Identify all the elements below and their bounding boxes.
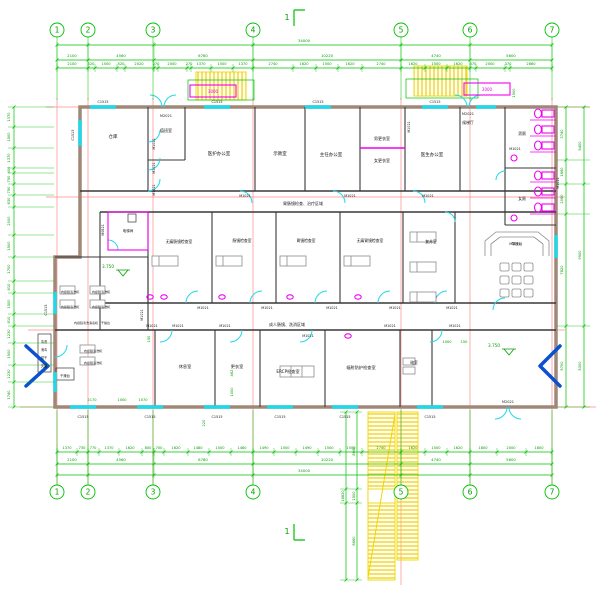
dim-top-detail: 270 — [153, 62, 161, 66]
dim-top-segment: 2100 — [67, 53, 77, 58]
room-female-wc: 女厕 — [518, 196, 526, 201]
dim-right-outer: 9900 — [578, 250, 582, 260]
room-director-office: 主任办公室 — [320, 151, 343, 158]
dim-left: 810 — [7, 283, 11, 291]
dim-left: 1370 — [7, 153, 11, 163]
dim-bottom-segment: 4560 — [116, 457, 126, 462]
room-storage: 仓库 — [109, 133, 118, 140]
label-process-step: 消毒 — [41, 347, 48, 352]
dim-top-segment: 6780 — [198, 53, 208, 58]
dim-right-outer: 5400 — [578, 141, 582, 151]
dim-left: 1370 — [7, 112, 11, 122]
window-code: C1515 — [275, 415, 286, 419]
dim-3000: 3000 — [208, 89, 219, 94]
grid-number-1: 1 — [55, 488, 60, 497]
door-code: M1021 — [556, 177, 560, 189]
dim-bottom-segment: 6780 — [198, 457, 208, 462]
window-code: C1515 — [430, 100, 441, 104]
grid-number-4: 4 — [251, 488, 256, 497]
dim-left: 1230 — [7, 329, 11, 339]
door-code: M1021 — [239, 194, 251, 198]
dim-bottom-segment: 5600 — [506, 457, 516, 462]
floor-plan-canvas: 2100520150052020202702000270137015001370… — [0, 0, 600, 600]
dim-top-segment: 4560 — [116, 53, 126, 58]
dim-right-outer: 5300 — [578, 361, 582, 371]
dim-top-detail: 2860 — [526, 62, 536, 66]
door-code: M1021 — [261, 306, 273, 310]
door-code: M1021 — [384, 324, 396, 328]
dim-top-detail: 1620 — [408, 62, 418, 66]
door-code: M1021 — [449, 324, 461, 328]
washer-units — [60, 286, 105, 365]
waiting-chairs — [500, 263, 533, 297]
grid-number-3: 3 — [151, 488, 156, 497]
window-code: C1515 — [212, 415, 223, 419]
dim-3000: 3000 — [482, 87, 493, 92]
elevation-right: 3.750 — [488, 343, 500, 348]
window-code: C1515 — [44, 305, 48, 316]
dim-bottom-detail: 1620 — [453, 446, 463, 450]
dim-ramp-total: 18820 — [341, 490, 345, 502]
dim-top-detail: 520 — [118, 62, 126, 66]
stair-top-right — [414, 66, 467, 96]
door-code: M2021 — [462, 112, 474, 116]
dim-top-detail: 1620 — [345, 62, 355, 66]
ceiling-fixture-symbols — [147, 295, 436, 338]
door-code: M1021 — [407, 121, 411, 133]
dim-top-detail: 2000 — [485, 62, 495, 66]
section-mark-symbols — [294, 10, 305, 540]
dim-ramp: 1500 — [352, 491, 356, 501]
dim-left: 810 — [7, 316, 11, 324]
dim-bottom-detail: 700 — [156, 446, 164, 450]
dim-right-inner: 3740 — [560, 129, 564, 139]
window-code: C1515 — [212, 100, 223, 104]
dim: 150 — [461, 340, 469, 344]
dim-bottom-detail: 2740 — [376, 446, 386, 450]
dim-bottom-detail: 770 — [90, 446, 98, 450]
room-male-locker: 男更衣室 — [374, 135, 390, 141]
dim-top-detail: 1500 — [322, 62, 332, 66]
room-radiation: 辐射防护检查室 — [346, 364, 375, 371]
dim-left: 1500 — [7, 349, 11, 359]
dim: 1500 — [512, 88, 516, 98]
dim-left: 1500 — [7, 299, 11, 309]
door-code: M2021 — [160, 114, 172, 118]
grid-number-6: 6 — [468, 26, 473, 35]
dim-top-detail: 1620 — [453, 62, 463, 66]
door-code: M1021 — [146, 324, 158, 328]
grid-number-2: 2 — [86, 488, 91, 497]
dim: 462 — [230, 370, 234, 377]
dim-top-detail: 270 — [186, 62, 194, 66]
dim-top-detail: 370 — [505, 62, 513, 66]
label-process-step: 清洗 — [41, 339, 48, 344]
grid-number-6: 6 — [468, 488, 473, 497]
label-endoscope-washer: 内窥镜清洗机 — [92, 289, 111, 294]
stair-hatches — [188, 66, 478, 580]
dim-ramp: 8660 — [352, 536, 356, 546]
room-painless-colonoscopy: 无痛肠镜检查室 — [166, 239, 193, 244]
room-ercp: ERCP检查室 — [276, 368, 299, 375]
dim-bottom-segment: 2100 — [67, 457, 77, 462]
window-code: C1515 — [313, 100, 324, 104]
dim-bottom-segment: 4740 — [431, 457, 441, 462]
door-code: M1021 — [446, 306, 458, 310]
dim-bottom-detail: 1500 — [280, 446, 290, 450]
door-code: M1021 — [152, 162, 156, 174]
dim-bottom-detail: 1500 — [431, 446, 441, 450]
dim-left: 400 — [7, 166, 11, 174]
dim-bottom-detail: 1620 — [408, 446, 418, 450]
dim-left: 1500 — [7, 132, 11, 142]
dim: 1000 — [230, 387, 234, 397]
grid-number-7: 7 — [550, 488, 555, 497]
label-endoscope-washer: 内窥镜清洗机 — [61, 304, 80, 309]
dim-top-detail: 1370 — [238, 62, 248, 66]
dim-bottom-detail: 1480 — [193, 446, 203, 450]
dim-top-detail: 2740 — [268, 62, 278, 66]
room-lift: 电梯间 — [123, 228, 134, 233]
dim: 2170 — [87, 398, 97, 402]
dim-right-inner: 7820 — [560, 265, 564, 275]
dim-bottom-detail: 1620 — [125, 446, 135, 450]
dim-top-detail: 520 — [88, 62, 96, 66]
room-recovery: 复苏室 — [425, 239, 437, 244]
window-code: C1515 — [340, 415, 351, 419]
dim-bottom-detail: 1500 — [324, 446, 334, 450]
elevation-markers — [116, 270, 516, 355]
door-code: M1021 — [509, 147, 521, 151]
toilet-fixtures — [511, 109, 556, 221]
dim-ramp: 8660 — [352, 446, 356, 456]
room-rest: 休息室 — [179, 363, 192, 370]
section-mark-top: 1 — [284, 13, 289, 22]
door-code: M1021 — [389, 306, 401, 310]
dim-left: 2000 — [7, 216, 11, 226]
room-demo: 示教室 — [273, 150, 287, 157]
dim-right-inner: 2080 — [560, 194, 564, 204]
door-code: M1021 — [344, 194, 356, 198]
stair-top-left — [196, 72, 246, 100]
label-process-step: 灭菌 — [41, 363, 47, 368]
dim-right-inner: 5700 — [560, 361, 564, 371]
dim-top-detail: 1500 — [431, 62, 441, 66]
label-wash-caption: 内窥镜清洗消毒机 干燥台 — [74, 320, 110, 325]
dim-top-segment: 10220 — [321, 53, 334, 58]
floor-plan-drawing: 2100520150052020202702000270137015001370… — [0, 0, 600, 600]
room-painless-gastroscopy: 无痛胃镜检查室 — [357, 238, 384, 243]
dim-left: 1740 — [7, 390, 11, 400]
dim-top-total: 34000 — [298, 38, 311, 43]
dim-bottom-detail: 1370 — [62, 446, 72, 450]
door-code: M1021 — [152, 138, 156, 150]
label-endoscope-washer: 内窥镜清洗机 — [92, 304, 111, 309]
dim-bottom-detail: 1490 — [302, 446, 312, 450]
dim-left: 1500 — [7, 241, 11, 251]
dim: 220 — [202, 419, 206, 427]
dim-bottom-detail: 800 — [145, 446, 153, 450]
dim-left: 1230 — [7, 369, 11, 379]
dim-top-segment: 5600 — [506, 53, 516, 58]
dim-left: 750 — [7, 175, 11, 183]
window-code: C1515 — [425, 415, 436, 419]
dim: 1000 — [117, 398, 127, 402]
door-code: M0821 — [101, 224, 105, 236]
dim-bottom-detail: 1480 — [237, 446, 247, 450]
section-mark-bottom: 1 — [284, 527, 289, 536]
dim-bottom-detail: 1620 — [171, 446, 181, 450]
dim-bottom-detail: 1370 — [104, 446, 114, 450]
dim-top-detail: 1500 — [217, 62, 227, 66]
room-female-locker: 女更衣室 — [374, 157, 390, 163]
dim-bottom-detail: 1500 — [215, 446, 225, 450]
grid-number-5: 5 — [399, 488, 404, 497]
grid-number-3: 3 — [151, 26, 156, 35]
dim-bottom-total: 34000 — [298, 468, 311, 473]
dim-top-detail: 2100 — [67, 62, 77, 66]
dim-bottom-detail: 2000 — [506, 446, 516, 450]
dim-top-detail: 2000 — [167, 62, 177, 66]
room-doctor-office: 医生办公室 — [421, 151, 444, 158]
dim-bottom-detail: 730 — [79, 446, 87, 450]
window-code: C1515 — [71, 130, 75, 141]
door-code: M1021 — [422, 194, 434, 198]
room-staff-office: 医护办公室 — [208, 150, 231, 157]
axis-grid-lines — [20, 98, 596, 585]
dim-top-detail: 1620 — [299, 62, 309, 66]
dim-right-inner: 1660 — [560, 167, 564, 177]
room-duty: 值班室 — [160, 127, 172, 133]
magenta-fixtures — [108, 83, 556, 338]
room-lift-lobby: 候梯厅 — [462, 120, 474, 125]
door-code: M2021 — [502, 400, 514, 404]
room-gastroscopy: 胃镜检查室 — [297, 238, 316, 243]
room-colonoscopy: 肠镜检查室 — [233, 238, 252, 243]
dim-top-detail: 2020 — [134, 62, 144, 66]
door-code: M1021 — [509, 242, 521, 246]
dim-bottom-segment: 10220 — [321, 457, 334, 462]
dim-top-detail: 1500 — [101, 62, 111, 66]
dim: 150 — [147, 335, 151, 343]
dim-bottom-detail: 1490 — [259, 446, 269, 450]
dim-bottom-detail: 1800 — [534, 446, 544, 450]
elevation-left: 3.750 — [102, 264, 114, 269]
grid-number-5: 5 — [399, 26, 404, 35]
door-code: M1021 — [152, 184, 156, 196]
door-code: M1021 — [302, 334, 314, 338]
window-code: C1515 — [78, 415, 89, 419]
dim-top-detail: 2740 — [376, 62, 386, 66]
grid-number-1: 1 — [55, 26, 60, 35]
room-changing: 更衣室 — [231, 363, 244, 370]
window-code: C1515 — [145, 415, 156, 419]
room-male-wc: 男厕 — [518, 131, 526, 136]
door-code: M1021 — [326, 306, 338, 310]
dim-bottom-detail: 1800 — [478, 446, 488, 450]
label-endoscope-washer: 内窥镜清洗机 — [61, 289, 80, 294]
window-code: C1515 — [98, 100, 109, 104]
furniture — [60, 232, 549, 377]
dim-left: 830 — [7, 197, 11, 205]
door-code: M1021 — [172, 324, 184, 328]
zone-exam-treatment: 胃肠镜检查、治疗区域 — [283, 200, 323, 206]
label-endoscope-washer: 内窥镜清洗机 — [84, 360, 103, 365]
door-code: M1021 — [197, 306, 209, 310]
dim-top-segment: 4740 — [431, 53, 441, 58]
grid-number-7: 7 — [550, 26, 555, 35]
dim-left: 750 — [7, 186, 11, 194]
dim-top-detail: 1370 — [196, 62, 206, 66]
grid-number-2: 2 — [86, 26, 91, 35]
door-code: M1021 — [140, 309, 144, 321]
dim: 1000 — [442, 340, 452, 344]
dim-left: 1700 — [7, 264, 11, 274]
zone-adult-colonoscopy: 成人肠镜、洗消区域 — [269, 321, 305, 327]
darkroom-cabinet — [403, 367, 415, 374]
dim: 1070 — [138, 398, 148, 402]
door-code: M1021 — [219, 324, 231, 328]
label-endoscope-washer: 内窥镜清洗机 — [84, 348, 103, 353]
label-process-step: 烘干 — [41, 355, 48, 360]
grid-number-4: 4 — [251, 26, 256, 35]
label-dry-bench: 干燥台 — [60, 373, 71, 378]
room-dark: 暗室 — [410, 360, 418, 365]
